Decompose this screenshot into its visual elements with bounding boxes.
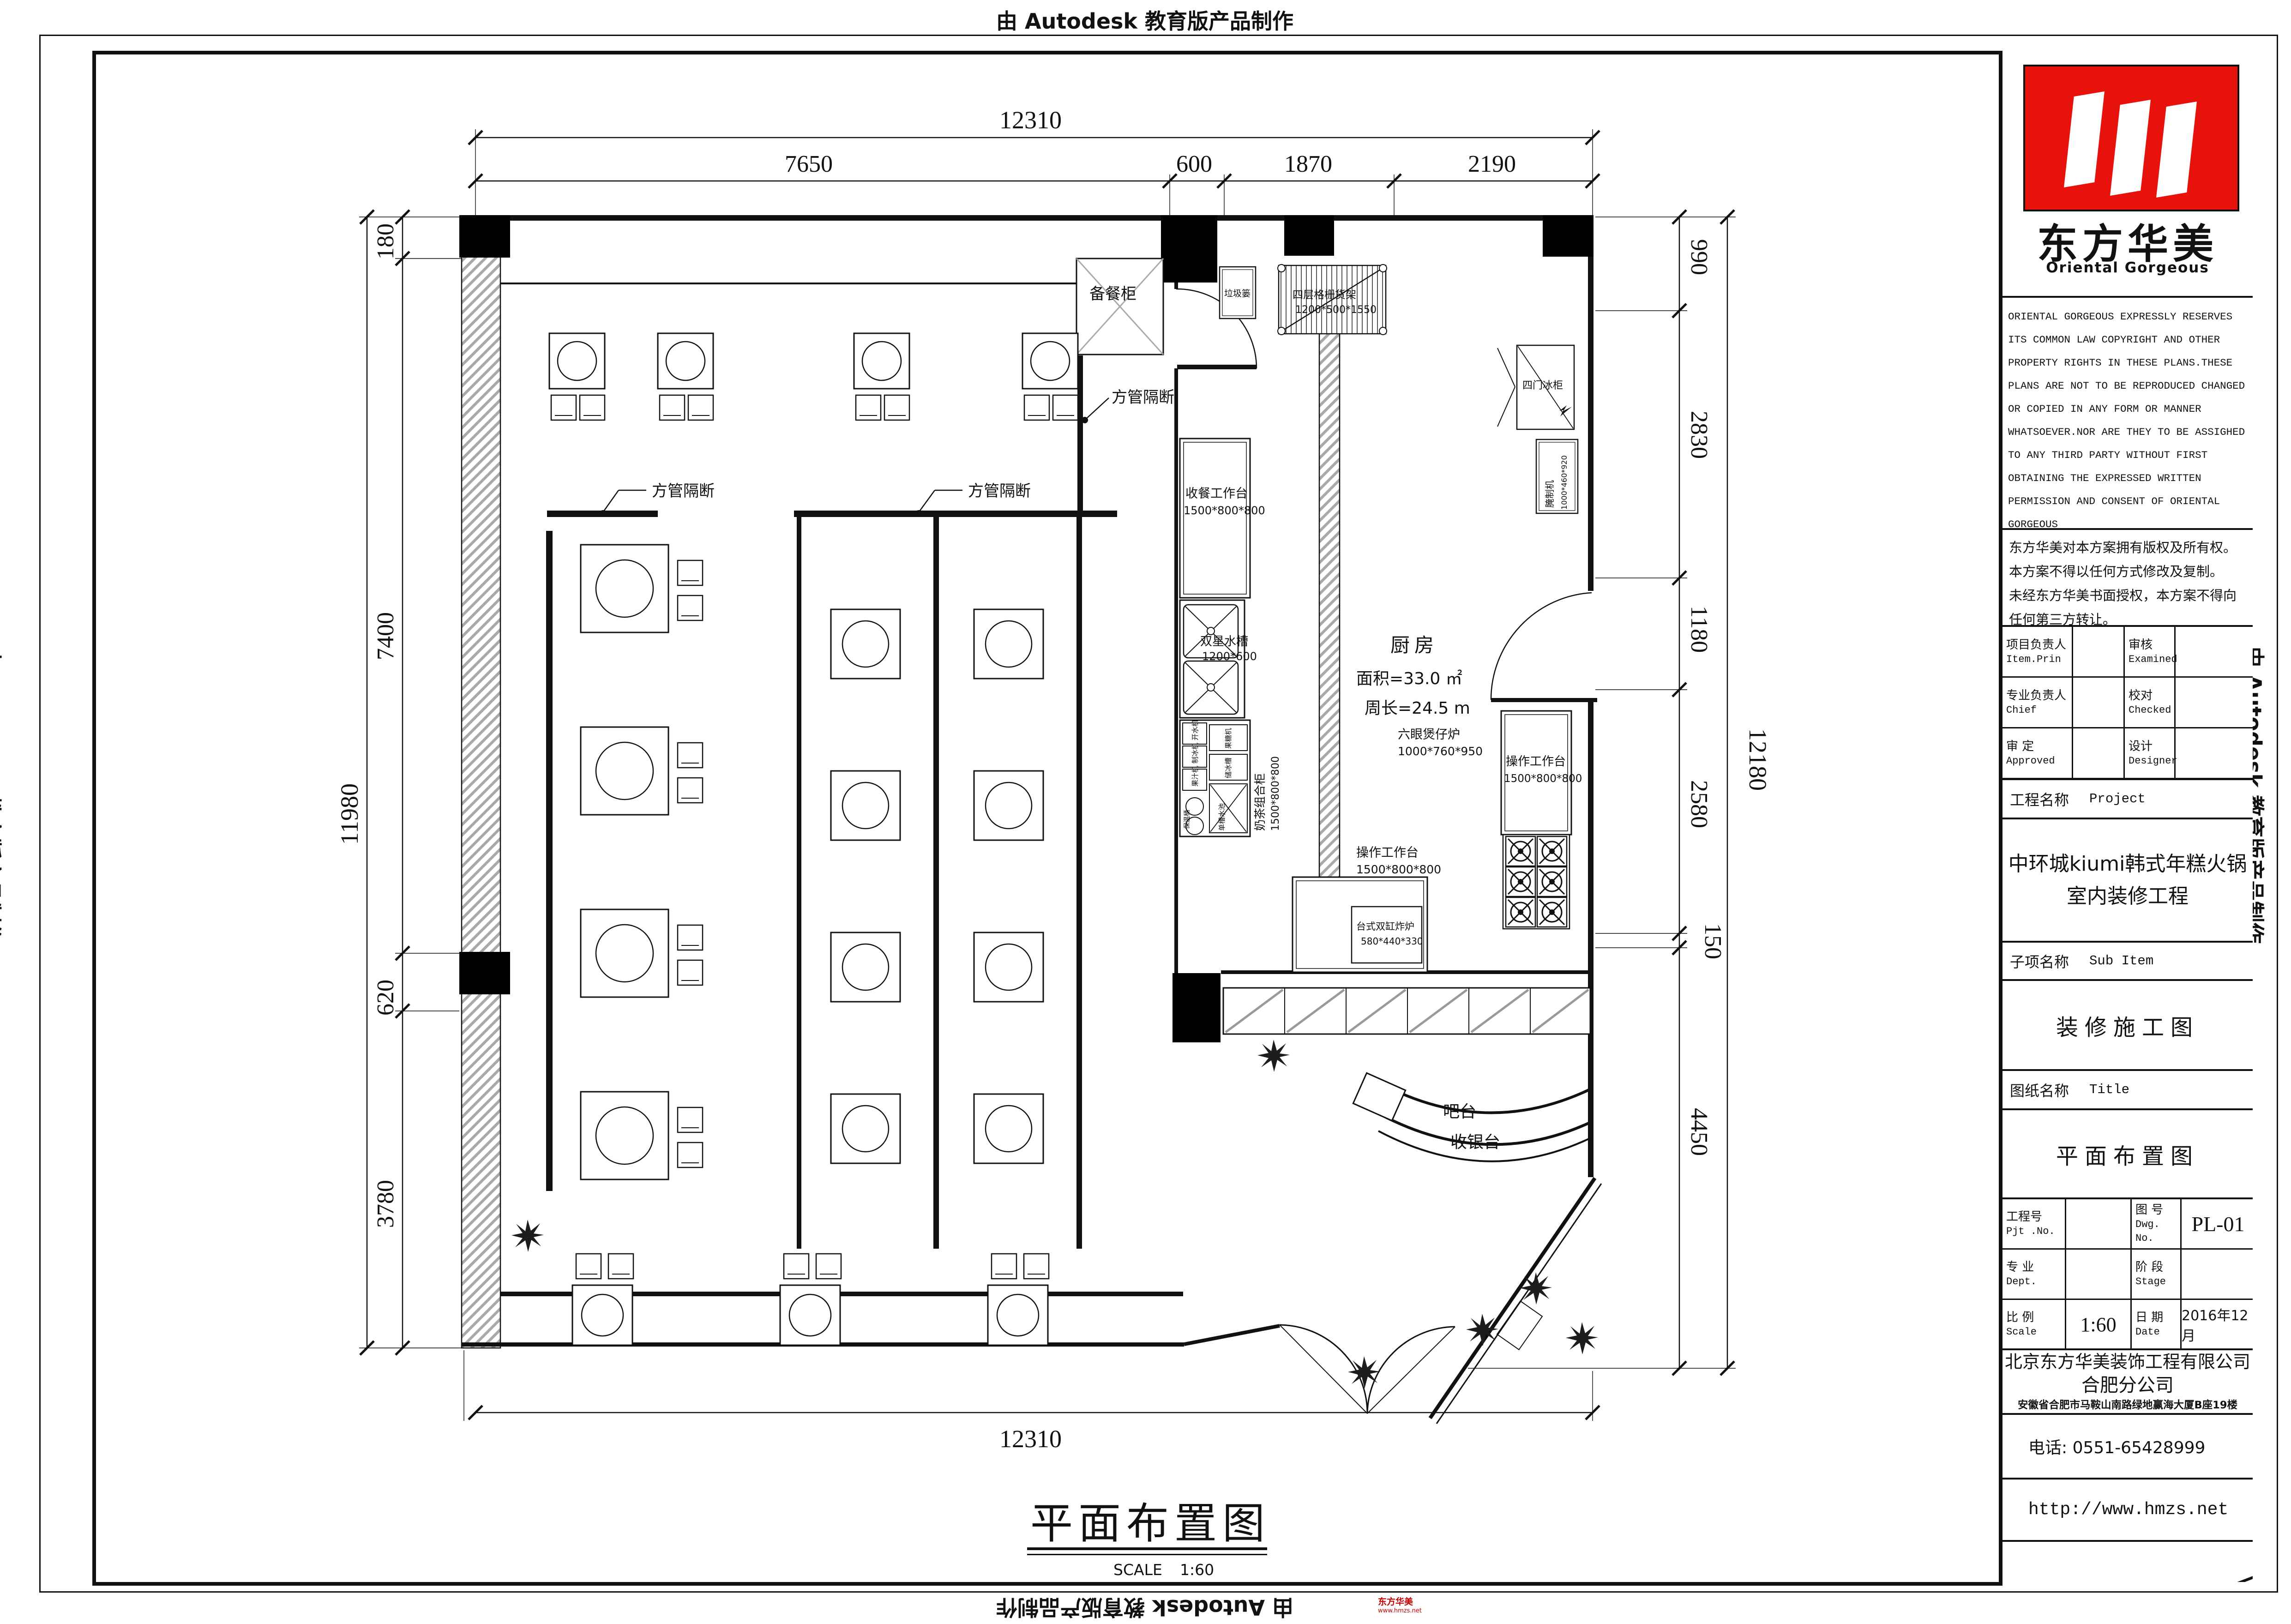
copyright-english: ORIENTAL GORGEOUS EXPRESSLY RESERVES ITS… <box>2002 298 2253 530</box>
drawing-scale-label: SCALE <box>1113 1561 1162 1579</box>
role-value <box>2072 627 2123 678</box>
dim-right-seg: 4450 <box>1686 1108 1712 1156</box>
east-worktable: 操作工作台 1500*800*800 <box>1501 711 1582 835</box>
south-worktable-label: 操作工作台 <box>1356 846 1419 860</box>
role-value <box>2072 728 2123 779</box>
serving-worktable-label: 收餐工作台 <box>1185 487 1248 501</box>
check-value <box>2174 728 2253 779</box>
fryer-label: 台式双缸炸炉 <box>1356 921 1414 932</box>
water-boiler-label: 开水机 <box>1191 720 1199 740</box>
title-block: 东方华美 Oriental Gorgeous ORIENTAL GORGEOUS… <box>1999 51 2253 1586</box>
copyright-line: ITS COMMON LAW COPYRIGHT AND OTHER <box>2008 328 2248 351</box>
copyright-chinese: 东方华美对本方案拥有版权及所有权。 本方案不得以任何方式修改及复制。 未经东方华… <box>2002 530 2253 627</box>
sheet-label-en: Title <box>2089 1082 2129 1097</box>
dim-right-seg: 2580 <box>1686 780 1712 828</box>
trash-basket: 垃圾篓 <box>1220 267 1256 319</box>
dwg-label: 图 号Dwg. No. <box>2130 1199 2180 1250</box>
four-door-fridge: 四门冰柜 <box>1497 345 1574 429</box>
project-label-en: Project <box>2089 791 2146 806</box>
kitchen-bottom-shelf <box>1223 988 1590 1034</box>
subitem-value-row: 装修施工图 <box>2002 981 2253 1071</box>
website-row: http://www.hmzs.net <box>2002 1480 2253 1542</box>
copyright-line: WHATSOEVER.NOR ARE THEY TO BE ASSIGHED <box>2008 421 2248 444</box>
dim-left-seg: 7400 <box>373 612 399 660</box>
role-label: 项目负责人Item.Prin <box>2002 627 2072 678</box>
bar-counter: 吧台 收银台 <box>1353 1073 1592 1161</box>
east-worktable-label: 操作工作台 <box>1506 755 1566 769</box>
copyright-cn-line: 任何第三方转让。 <box>2009 607 2249 627</box>
east-worktable-size: 1500*800*800 <box>1504 773 1582 785</box>
dining-tables-top-row <box>549 333 1078 420</box>
dim-top-seg: 600 <box>1176 151 1212 177</box>
dept-label: 专 业Dept. <box>2002 1250 2065 1300</box>
copyright-cn-line: 未经东方华美书面授权，本方案不得向 <box>2009 583 2249 607</box>
stage-value <box>2180 1250 2253 1300</box>
title-block-logo-section: 东方华美 Oriental Gorgeous <box>2002 51 2253 298</box>
kitchen-room-label: 厨房 面积=33.0 ㎡ 周长=24.5 m <box>1356 634 1470 718</box>
date-label: 日 期Date <box>2130 1300 2180 1350</box>
sheet-label-cn: 图纸名称 <box>2010 1079 2069 1101</box>
company-website: http://www.hmzs.net <box>2002 1480 2253 1540</box>
project-label-row: 工程名称Project <box>2002 780 2253 819</box>
copyright-line: GORGEOUS <box>2008 513 2248 530</box>
milk-tea-cabinet-size: 1500*800*800 <box>1270 756 1281 831</box>
dim-right-total: 12180 <box>1744 728 1772 791</box>
dim-right-seg: 990 <box>1686 239 1712 275</box>
milk-tea-cabinet: 开水机 制冰机 果汁机 保温桶 果糖机 储冰槽 单槽水池 奶茶组合柜 1500*… <box>1180 720 1281 836</box>
dim-bottom-total: 12310 <box>999 1425 1062 1453</box>
shelf-label: 四层格栅货架 <box>1293 289 1356 301</box>
kitchen-area: 面积=33.0 ㎡ <box>1356 669 1462 688</box>
logo-stroke-icon <box>2156 102 2197 198</box>
marinator-size: 1000*460*920 <box>1560 455 1569 510</box>
stage-label: 阶 段Stage <box>2130 1250 2180 1300</box>
marinator-label: 腌制机 <box>1544 480 1555 508</box>
drawing-title: 平面布置图 SCALE 1:60 <box>1027 1499 1270 1579</box>
dim-right-seg: 1180 <box>1686 606 1712 653</box>
fructose-label: 果糖机 <box>1224 728 1233 749</box>
bar-label-2: 收银台 <box>1450 1133 1500 1152</box>
project-name-line1: 中环城kiumi韩式年糕火锅 <box>2008 848 2247 880</box>
logo-stroke-icon <box>2064 91 2105 187</box>
kitchen-perimeter: 周长=24.5 m <box>1365 699 1470 718</box>
double-sink: 双星水槽 1200*600 <box>1180 600 1257 718</box>
logo-stroke-icon <box>2110 100 2151 196</box>
copyright-line: PLANS ARE NOT TO BE REPRODUCED CHANGED <box>2008 374 2248 397</box>
door-kitchen-east <box>1491 593 1597 702</box>
dim-right-seg: 150 <box>1700 923 1726 959</box>
drawing-title-text: 平面布置图 <box>1030 1499 1270 1548</box>
project-name-line2: 室内装修工程 <box>2067 880 2189 913</box>
pjt-value <box>2065 1199 2130 1250</box>
subitem-value: 装修施工图 <box>2002 981 2253 1069</box>
stove-label: 六眼煲仔炉 <box>1398 728 1460 742</box>
fridge-label: 四门冰柜 <box>1522 380 1563 391</box>
south-worktable-size: 1500*800*800 <box>1356 863 1441 876</box>
company-line1: 北京东方华美装饰工程有限公司 <box>2005 1350 2250 1373</box>
subitem-label-en: Sub Item <box>2089 953 2153 968</box>
company-address: 安徽省合肥市马鞍山南路绿地赢海大厦B座19楼 <box>2018 1397 2237 1413</box>
plants <box>511 1040 1598 1389</box>
ice-bin-label: 储冰槽 <box>1224 758 1233 778</box>
stove-size: 1000*760*950 <box>1398 745 1483 758</box>
corner-cut-line <box>2124 1576 2253 1582</box>
pjt-label: 工程号Pjt .No. <box>2002 1199 2065 1250</box>
dim-top-seg: 1870 <box>1284 151 1332 177</box>
check-label: 设计Designer <box>2123 728 2174 779</box>
scale-label: 比 例Scale <box>2002 1300 2065 1350</box>
four-layer-shelf: 四层格栅货架 1200*500*1550 <box>1278 265 1387 335</box>
copyright-line: PROPERTY RIGHTS IN THESE PLANS.THESE <box>2008 351 2248 374</box>
prep-cabinet: 备餐柜 <box>1076 259 1163 355</box>
role-value <box>2072 678 2123 728</box>
scale-value: 1:60 <box>2065 1300 2130 1350</box>
marinator: 腌制机 1000*460*920 <box>1536 439 1578 513</box>
sheet-label-row: 图纸名称Title <box>2002 1071 2253 1110</box>
copyright-cn-line: 本方案不得以任何方式修改及复制。 <box>2009 559 2249 583</box>
dim-left-seg: 180 <box>373 223 399 259</box>
south-worktable: 操作工作台 1500*800*800 台式双缸炸炉 580*440*330 <box>1293 846 1441 972</box>
partition-label-text: 方管隔断 <box>1112 388 1174 407</box>
partition-label-3: 方管隔断 <box>1082 388 1174 423</box>
dim-top-seg: 7650 <box>785 151 833 177</box>
copyright-line: PERMISSION AND CONSENT OF ORIENTAL <box>2008 490 2248 513</box>
sink-label: 双星水槽 <box>1200 635 1248 649</box>
role-label: 审 定Approved <box>2002 728 2072 779</box>
company-phone: 电话: 0551-65428999 <box>2002 1415 2253 1478</box>
title-block-tail <box>2002 1542 2253 1582</box>
company-name-en: Oriental Gorgeous <box>2002 259 2253 276</box>
copyright-line: OR COPIED IN ANY FORM OR MANNER <box>2008 397 2248 421</box>
dim-left-total: 11980 <box>336 783 363 845</box>
numbers-table: 工程号Pjt .No. 图 号Dwg. No. PL-01 专 业Dept. 阶… <box>2002 1199 2253 1350</box>
watermark-line2: www.hmzs.net <box>1378 1606 1422 1616</box>
dim-top-seg: 2190 <box>1468 151 1516 177</box>
company-logo <box>2023 65 2239 211</box>
sheet-value-row: 平面布置图 <box>2002 1110 2253 1199</box>
prep-cabinet-label: 备餐柜 <box>1089 285 1136 303</box>
watermark: 东方华美 www.hmzs.net <box>1378 1597 1422 1616</box>
drawing-scale-value: 1:60 <box>1180 1561 1214 1579</box>
dining-tables-bottom-bench <box>572 1254 1049 1345</box>
dim-top-total: 12310 <box>999 106 1062 134</box>
trash-label: 垃圾篓 <box>1224 289 1251 299</box>
subitem-label-cn: 子项名称 <box>2010 950 2069 972</box>
check-label: 审核Examined <box>2123 627 2174 678</box>
role-label: 专业负责人Chief <box>2002 678 2072 728</box>
shelf-size: 1200*500*1550 <box>1295 304 1377 316</box>
project-label-cn: 工程名称 <box>2010 788 2069 810</box>
dining-tables-left-column <box>581 545 703 1179</box>
copyright-line: OBTAINING THE EXPRESSED WRITTEN <box>2008 467 2248 490</box>
copyright-cn-line: 东方华美对本方案拥有版权及所有权。 <box>2009 535 2249 559</box>
milk-tea-cabinet-label: 奶茶组合柜 <box>1253 773 1267 831</box>
dim-left-seg: 3780 <box>373 1180 399 1228</box>
dept-value <box>2065 1250 2130 1300</box>
floor-plan-drawing: 方管隔断 方管隔断 方管隔断 备餐柜 <box>0 0 2291 1620</box>
check-value <box>2174 627 2253 678</box>
partition-label-text: 方管隔断 <box>652 482 715 500</box>
serving-worktable: 收餐工作台 1500*800*800 <box>1180 439 1265 598</box>
sink-size: 1200*600 <box>1202 650 1257 663</box>
sheet-value: 平面布置图 <box>2002 1110 2253 1197</box>
check-value <box>2174 678 2253 728</box>
copyright-line: ORIENTAL GORGEOUS EXPRESSLY RESERVES <box>2008 305 2248 328</box>
ice-maker-label: 制冰机 <box>1191 743 1199 764</box>
kitchen-name: 厨房 <box>1390 634 1438 656</box>
personnel-table: 项目负责人Item.Prin 审核Examined 专业负责人Chief 校对C… <box>2002 627 2253 780</box>
dwg-number: PL-01 <box>2180 1199 2253 1250</box>
phone-row: 电话: 0551-65428999 <box>2002 1415 2253 1480</box>
subitem-label-row: 子项名称Sub Item <box>2002 943 2253 981</box>
company-info: 北京东方华美装饰工程有限公司 合肥分公司 安徽省合肥市马鞍山南路绿地赢海大厦B座… <box>2002 1350 2253 1415</box>
dim-right-seg: 2830 <box>1686 411 1712 459</box>
dim-left-seg: 620 <box>373 980 399 1016</box>
company-line2: 合肥分公司 <box>2081 1373 2174 1397</box>
watermark-line1: 东方华美 <box>1378 1597 1422 1606</box>
serving-worktable-size: 1500*800*800 <box>1184 504 1265 517</box>
bar-label-1: 吧台 <box>1443 1102 1476 1121</box>
check-label: 校对Checked <box>2123 678 2174 728</box>
copyright-line: TO ANY THIRD PARTY WITHOUT FIRST <box>2008 444 2248 467</box>
date-value: 2016年12月 <box>2180 1300 2253 1350</box>
fryer-size: 580*440*330 <box>1361 936 1423 947</box>
single-sink-label: 单槽水池 <box>1218 803 1226 831</box>
thermal-barrel-label: 保温桶 <box>1184 810 1191 829</box>
juicer-label: 果汁机 <box>1191 766 1199 787</box>
partition-label-text: 方管隔断 <box>968 482 1031 500</box>
project-name: 中环城kiumi韩式年糕火锅 室内装修工程 <box>2002 819 2253 943</box>
